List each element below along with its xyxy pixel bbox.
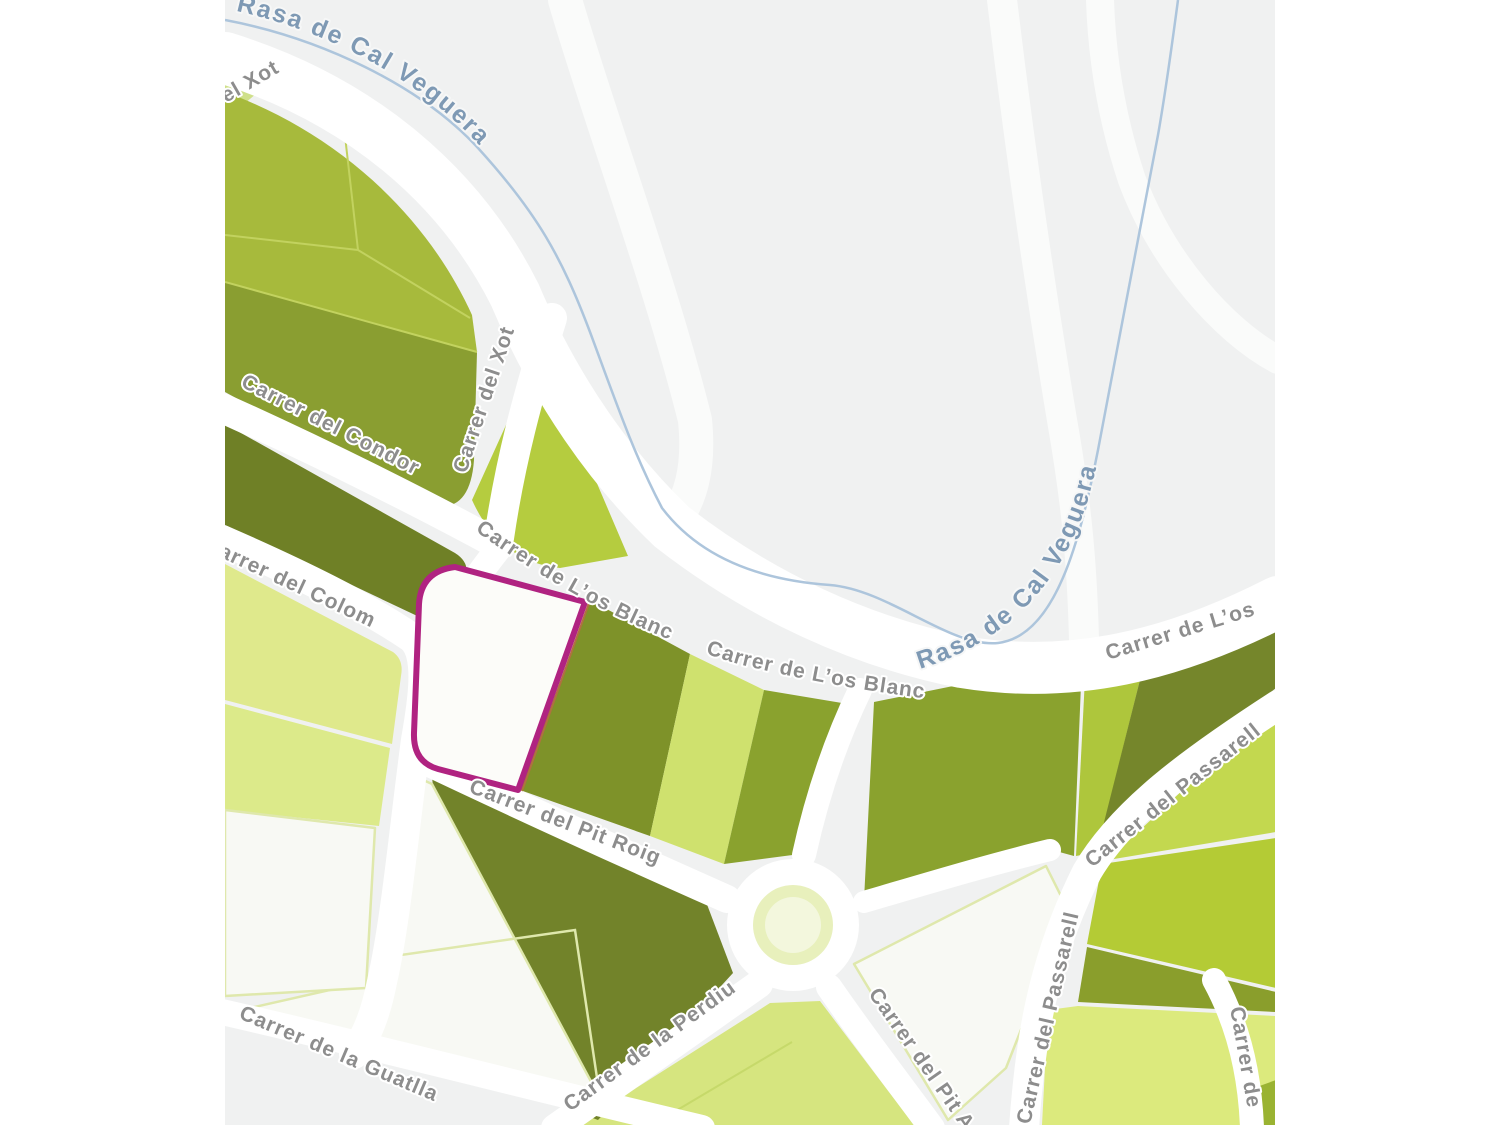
- roundabout-center: [765, 897, 821, 953]
- map-canvas[interactable]: Rasa de Cal Veguera Rasa de Cal Veguera …: [0, 0, 1500, 1125]
- parcel: [225, 810, 375, 996]
- map-screenshot: Rasa de Cal Veguera Rasa de Cal Veguera …: [0, 0, 1500, 1125]
